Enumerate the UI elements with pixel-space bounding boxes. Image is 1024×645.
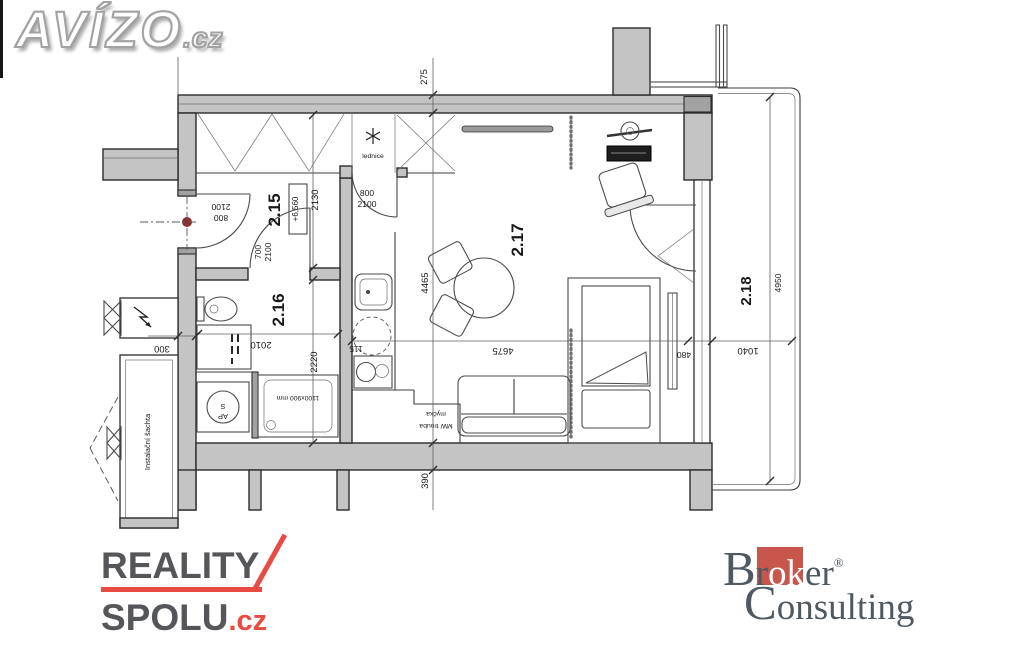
wall-stub-below-2: [249, 470, 261, 510]
registered-mark: ®: [834, 555, 844, 570]
dim-300: 300: [154, 343, 170, 354]
kitchen: myčka MW trouba 115: [349, 232, 460, 443]
kitchen-door-arc: [352, 172, 397, 217]
wall-left-upper: [178, 113, 196, 196]
wall-hall-living: [340, 178, 352, 443]
electrical-closet: [120, 298, 178, 338]
wall-right-top: [684, 113, 712, 180]
living-room: 2.17: [427, 117, 677, 443]
entry-door-width: 800: [214, 213, 228, 223]
broker-consulting-line2: Consulting: [744, 576, 914, 630]
scan-edge-artifact: [0, 0, 3, 78]
room-label-218: 2.18: [738, 276, 755, 305]
fridge-label: lednice: [362, 153, 384, 160]
microwave-oven-label: MW trouba: [419, 422, 452, 429]
dim-2220: 2220: [309, 351, 320, 372]
wall-shelf: [462, 126, 553, 132]
closet-triangles: [198, 114, 344, 171]
wall-kitchen-door-stub: [340, 166, 352, 178]
casement-swing-symbol: [658, 229, 694, 283]
desk-bar: [607, 130, 652, 136]
reality-spolu-logo: REALITY SPOLU.cz: [101, 547, 321, 636]
room-label-215: 2.15: [265, 193, 284, 226]
dim-4675: 4675: [492, 345, 513, 356]
chair-2: [429, 293, 475, 337]
doors: [140, 172, 696, 283]
dim-2010: 2010: [250, 339, 271, 350]
wall-bath-divider: [252, 372, 258, 438]
kitchen-door-height: 2100: [358, 199, 377, 209]
wall-stub-below-3: [337, 470, 349, 510]
bed-fold-corner: [586, 352, 648, 384]
vanity-note-marks: [232, 334, 238, 364]
wall-stub-below-4: [690, 470, 712, 510]
bath-door-width: 700: [253, 245, 263, 259]
dim-4465: 4465: [420, 272, 431, 293]
bath-door-height: 2100: [263, 242, 273, 261]
window-symbol-2-icon: [107, 427, 121, 459]
shower-tray: [258, 375, 338, 437]
reality-spolu-line2: SPOLU.cz: [101, 599, 321, 636]
dim-115: 115: [349, 344, 363, 354]
wall-hall-bath-left: [196, 268, 248, 280]
shower-tray-inner: [264, 380, 332, 432]
kitchen-door-width: 800: [360, 188, 374, 198]
dim-390: 390: [420, 473, 431, 489]
wall-thin-upper-2: [724, 25, 728, 87]
installation-shaft-cap: [120, 518, 178, 528]
avizo-wordmark: AVÍZO: [16, 1, 183, 58]
dim-480: 480: [677, 350, 691, 360]
shower-drain: [267, 421, 276, 430]
desk-chair: [593, 160, 654, 217]
dim-1040: 1040: [737, 345, 758, 356]
dim-275: 275: [419, 69, 430, 85]
closet-x-right: [397, 115, 455, 171]
dining-table: [454, 258, 514, 318]
reality-spolu-tld: .cz: [228, 605, 267, 637]
balcony-railing-outer: [712, 88, 800, 490]
entry-jamb-top: [178, 190, 196, 196]
burner-small: [376, 365, 389, 378]
kitchen-tap: [366, 290, 370, 294]
installation-shaft-area: Instalační šachta: [90, 298, 178, 528]
reality-spolu-line1: REALITY: [101, 547, 321, 585]
dim-4950: 4950: [773, 273, 783, 292]
elevation-label: +6,560: [291, 196, 300, 221]
window-symbol-icon: [104, 301, 121, 335]
shaft-label: Instalační šachta: [143, 413, 152, 470]
consulting-text: Consulting: [744, 576, 914, 630]
sofa-back: [462, 417, 566, 433]
snowflake-icon: [366, 128, 380, 144]
corridor-dashed-lines: [90, 397, 118, 501]
kitchen-sink: [355, 274, 392, 310]
wall-corridor-stub: [103, 149, 178, 180]
wall-top-corner-block: [684, 97, 711, 113]
kitchen-sink-basin: [360, 279, 387, 305]
avizo-logo: AVÍZO.cz: [16, 0, 223, 59]
balcony-door-arc: [630, 205, 696, 271]
wall-thin-upper-1: [716, 25, 720, 87]
vanity-cabinet: [197, 325, 251, 369]
bed-pillow: [582, 390, 650, 428]
room-label-216: 2.16: [269, 293, 288, 326]
reality-spolu-word2: SPOLU: [101, 597, 228, 638]
burner-large: [357, 363, 376, 382]
room-label-217: 2.17: [508, 223, 527, 256]
entry-door-height: 2100: [211, 202, 230, 212]
dim-2130: 2130: [310, 189, 321, 210]
toilet-flush: [210, 305, 218, 313]
walls: [103, 25, 727, 510]
cooktop: [354, 356, 392, 388]
toilet-tank: [197, 297, 204, 321]
hall: lednice 2.15 +6,560 2100 800 700 2100 80…: [196, 113, 455, 261]
avizo-tld: .cz: [183, 22, 223, 53]
listing-image: Instalační šachta lednice: [0, 0, 1024, 645]
broker-consulting-logo: Broker® Consulting: [710, 540, 960, 640]
balcony-labels: 2.18 4950 1040: [737, 273, 783, 356]
wall-stub-below-1: [178, 470, 196, 510]
reality-spolu-underline: [101, 587, 262, 592]
washing-machine-label-1: AP: [218, 412, 228, 421]
wall-column-upper-neighbor: [613, 28, 650, 95]
washing-machine-label-2: S: [220, 402, 225, 411]
chair-1: [427, 240, 473, 284]
wall-bottom: [196, 443, 712, 470]
dishwasher-label: myčka: [426, 410, 446, 417]
